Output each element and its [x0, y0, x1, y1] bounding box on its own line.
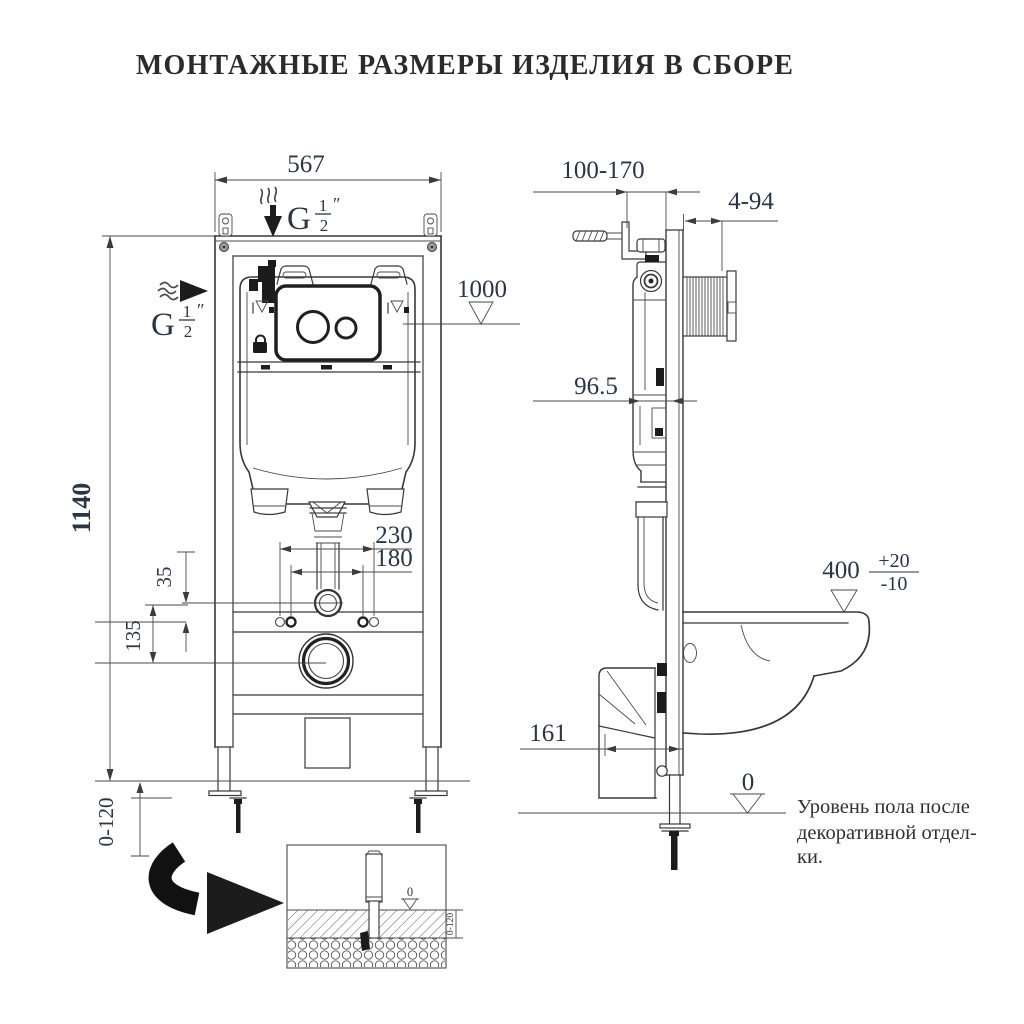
inset-dim-leg-adjust: 0-120 — [446, 910, 463, 938]
flush-pipe — [310, 508, 346, 589]
side-view: 100-170 4-94 — [518, 157, 977, 870]
floor-zero-mark: 0 — [730, 769, 765, 813]
dim-bowl-height-label: 400 — [822, 557, 860, 584]
inset-zero-label: 0 — [407, 885, 413, 899]
inlet-side-label: G 1 2 ″ — [151, 300, 205, 343]
dim-leg-adjust-front: 0-120 — [94, 782, 172, 856]
floor-note-line-3: ки. — [797, 846, 823, 868]
lock-icon — [253, 336, 267, 354]
dim-outlet-depth: 161 — [520, 720, 683, 756]
hanger-tab-right-icon — [424, 214, 437, 236]
dim-cistern-depth: 96.5 — [533, 373, 697, 445]
cistern-tank — [238, 260, 420, 517]
floor-note: Уровень пола после декоративной отдел- к… — [797, 796, 977, 868]
dim-cistern-depth-label: 96.5 — [574, 373, 618, 400]
inlet-side-numerator: 1 — [183, 302, 192, 321]
dim-bowl-height: 400 +20 -10 — [822, 550, 919, 612]
inlet-side-denominator: 2 — [184, 322, 193, 341]
dim-depth-range-label: 100-170 — [561, 157, 644, 184]
dim-total-height: 1140 — [67, 236, 215, 781]
dim-leg-adjust-front-label: 0-120 — [94, 798, 118, 847]
floor-note-line-2: декоративной отдел- — [797, 822, 977, 844]
inlet-top-numerator: 1 — [319, 196, 328, 215]
floor-detail-inset: 0 0-120 — [160, 845, 463, 968]
dim-plate-height: 1000 — [403, 276, 520, 324]
anchor-bolt-right-icon — [410, 798, 426, 833]
dim-depth-range: 100-170 — [533, 157, 700, 230]
inlet-top-denominator: 2 — [320, 216, 329, 235]
anchor-bolt-left-icon — [230, 798, 246, 833]
inlet-top-letter: G — [287, 201, 311, 237]
dim-plate-height-label: 1000 — [457, 276, 507, 303]
anchor-bolt-side-icon — [662, 831, 688, 870]
tank-handle-left-icon — [277, 266, 313, 284]
hanger-tab-left-icon — [219, 214, 232, 236]
dim-bolt-spacing: 230 180 — [280, 522, 413, 616]
dim-bowl-height-tol-plus: +20 — [878, 550, 909, 572]
dim-frame-width-label: 567 — [287, 151, 325, 178]
tank-handle-right-icon — [371, 266, 407, 284]
mounting-studs — [276, 618, 379, 627]
drain-outlet — [299, 634, 353, 688]
inlet-side-unit: ″ — [197, 300, 205, 320]
drain-elbow — [599, 663, 667, 798]
dim-offset-135-label: 135 — [121, 620, 145, 652]
dim-total-height-label: 1140 — [67, 483, 96, 534]
fill-valve-icon — [249, 260, 276, 303]
dim-offset-35-label: 35 — [152, 567, 176, 588]
water-inlet-top-icon — [261, 187, 282, 237]
installation-drawing-page: МОНТАЖНЫЕ РАЗМЕРЫ ИЗДЕЛИЯ В СБОРЕ 567 — [0, 0, 1024, 1024]
water-inlet-side-icon — [158, 280, 208, 302]
inlet-top-label: G 1 2 ″ — [287, 194, 341, 237]
toilet-bowl-side — [683, 612, 869, 734]
wall-bracket — [573, 222, 665, 259]
dim-bolt-inner-label: 180 — [375, 545, 413, 572]
callout-arrow-icon — [160, 852, 284, 934]
dim-finish-range: 4-94 — [684, 188, 779, 271]
front-view: 567 1140 1000 G — [67, 151, 520, 856]
access-sleeve — [683, 271, 736, 341]
floor-zero-label: 0 — [742, 769, 755, 796]
water-level-mark-right-icon — [388, 301, 409, 313]
inlet-top-unit: ″ — [333, 194, 341, 214]
cistern-side — [633, 255, 667, 610]
floor-note-line-1: Уровень пола после — [797, 796, 970, 818]
dim-outlet-depth-label: 161 — [529, 720, 567, 747]
dim-finish-range-label: 4-94 — [728, 188, 774, 215]
flush-plate — [276, 286, 380, 360]
inset-dim-leg-adjust-label: 0-120 — [446, 913, 456, 935]
technical-drawing: 567 1140 1000 G — [0, 0, 1024, 1024]
inlet-side-letter: G — [151, 307, 175, 343]
dim-bowl-height-tol-minus: -10 — [881, 573, 908, 595]
